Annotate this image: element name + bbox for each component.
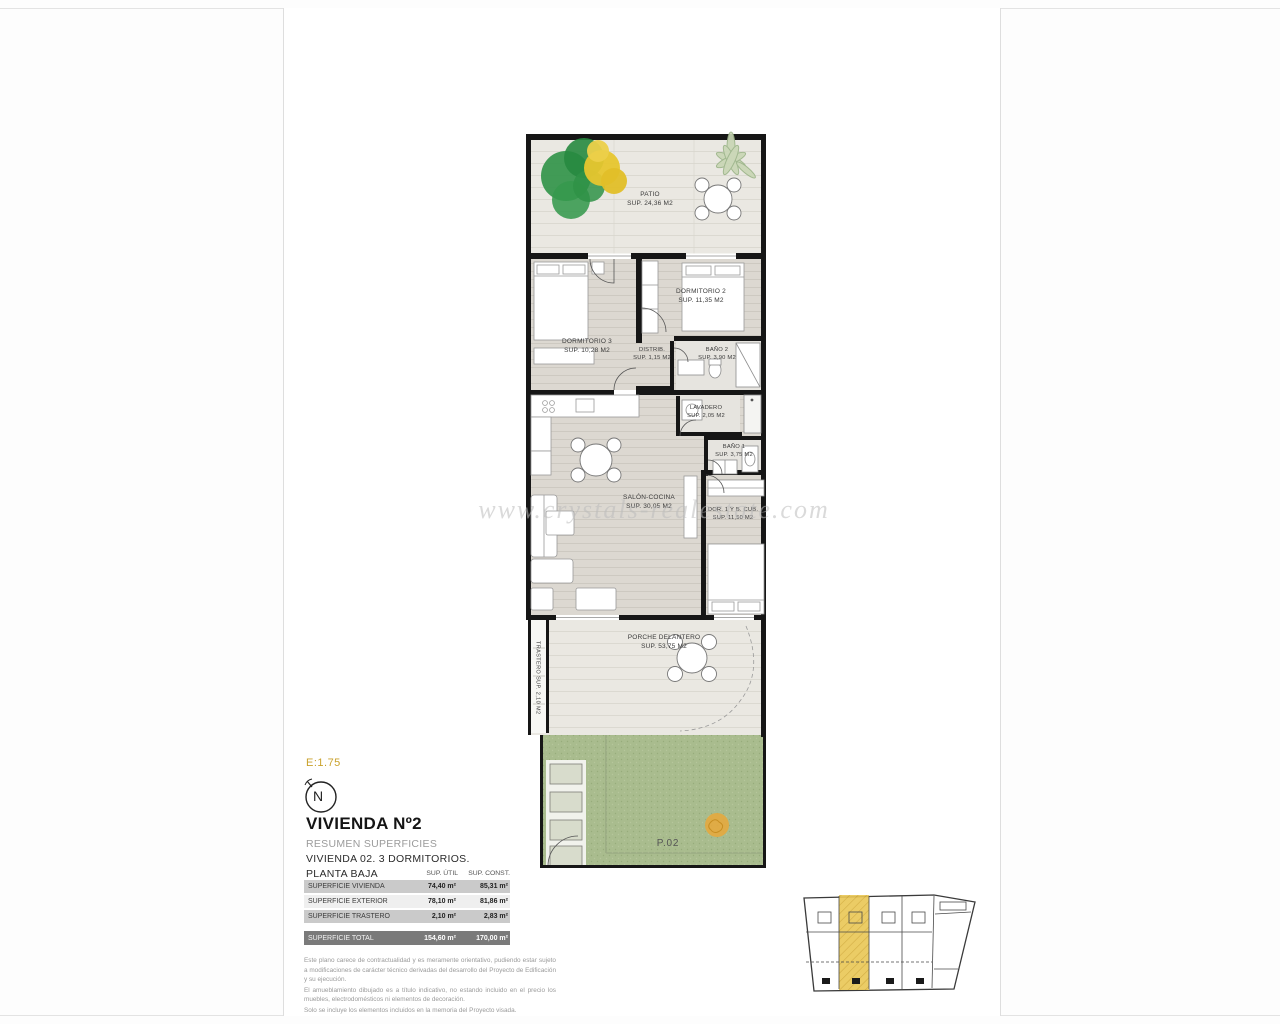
room-label-distribuidor: DISTRIB. SUP. 1,15 M2 [633,347,671,363]
room-label-porche: PORCHE DELANTERO SUP. 53,75 M2 [628,634,701,652]
disclaimer-text: Este plano carece de contractualidad y e… [304,956,556,1017]
coffee-table [546,511,574,535]
table-row-exterior: SUPERFICIE EXTERIOR 78,10 m² 81,86 m² [304,895,510,908]
table-row-trastero: SUPERFICIE TRASTERO 2,10 m² 2,83 m² [304,910,510,923]
garden-planter [550,846,582,866]
table-row-total: SUPERFICIE TOTAL 154,60 m² 170,00 m² [304,931,510,945]
areas-table: SUP. ÚTIL SUP. CONST. SUPERFICIE VIVIEND… [304,870,510,945]
garden-planter [550,792,582,812]
scale-label: E:1.75 [306,757,341,769]
room-label-dormitorio-2: DORMITORIO 2 SUP. 11,35 M2 [676,288,726,306]
page-background: { "watermark": "www.crystals-realestate.… [0,0,1280,1024]
areas-table-header: SUP. ÚTIL SUP. CONST. [304,870,510,877]
room-label-trastero: TRASTERO SUP. 2,10 M2 [533,636,541,720]
room-label-dormitorio-1: DOR. 1 Y B. CUB. SUP. 11,50 M2 [708,507,758,523]
room-label-bano-1: BAÑO 1 SUP. 3,75 M2 [715,444,753,460]
room-label-salon-cocina: SALÓN-COCINA SUP. 30,05 M2 [623,494,675,512]
garden-planter [550,820,582,840]
dwelling-descriptor: VIVIENDA 02. 3 DORMITORIOS. [306,853,470,865]
room-label-dormitorio-3: DORMITORIO 3 SUP. 10,28 M2 [562,338,612,356]
highlighted-unit [839,895,869,990]
summary-subtitle: RESUMEN SUPERFICIES [306,838,437,850]
parcel-label: P.02 [657,838,679,849]
table-row-vivienda: SUPERFICIE VIVIENDA 74,40 m² 85,31 m² [304,880,510,893]
room-label-patio: PATIO SUP. 24,36 M2 [627,191,673,209]
north-letter: N [313,788,323,804]
armchair [576,588,616,610]
garden-shrub [705,813,729,837]
garden [540,735,766,868]
dormitorio2-wardrobe [642,261,658,333]
plan-sheet: PATIO SUP. 24,36 M2 DORMITORIO 2 SUP. 11… [283,8,1001,1016]
room-label-bano-2: BAÑO 2 SUP. 3,90 M2 [698,347,736,363]
page-title: VIVIENDA Nº2 [306,814,422,834]
garden-planter [550,764,582,784]
col-header-const: SUP. CONST. [458,870,510,877]
col-header-util: SUP. ÚTIL [406,870,458,877]
tv-unit [684,476,697,538]
key-plan-drawing [794,874,994,1014]
room-label-lavadero: LAVADERO SUP. 2,05 M2 [687,405,725,421]
